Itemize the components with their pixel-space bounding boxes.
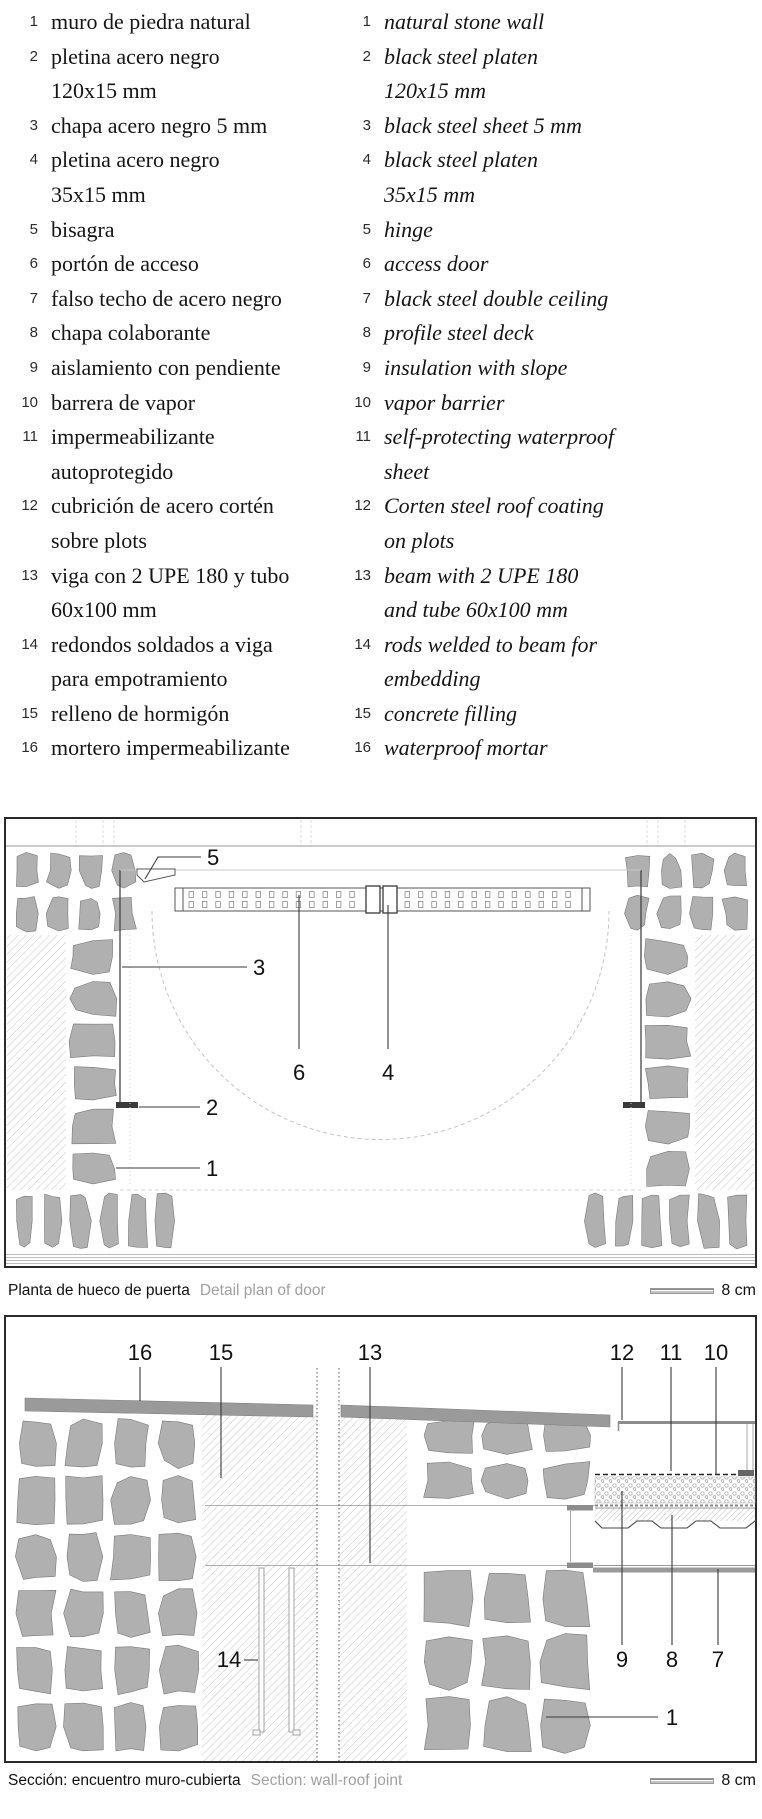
stone xyxy=(645,1066,688,1099)
legend-num: 11 xyxy=(341,420,371,489)
legend-term-es: cubrición de acero cortén sobre plots xyxy=(51,489,328,558)
legend-term-es: redondos soldados a viga para empotramie… xyxy=(51,628,328,697)
legend-term-es: viga con 2 UPE 180 y tubo 60x100 mm xyxy=(51,559,328,628)
legend-term-es: aislamiento con pendiente xyxy=(51,351,328,386)
plan-caption-en: Detail plan of door xyxy=(200,1282,326,1300)
callout-16-mortar: 16 xyxy=(128,1340,152,1365)
section-caption: Sección: encuentro muro-cubierta Section… xyxy=(8,1771,756,1791)
stone xyxy=(114,1703,146,1752)
legend-term-en: black steel platen 35x15 mm xyxy=(384,143,756,212)
stone xyxy=(115,1647,150,1695)
legend-num: 7 xyxy=(341,282,371,317)
scale-bar xyxy=(650,1288,714,1294)
stone xyxy=(69,1024,115,1058)
stone xyxy=(625,856,649,887)
callout-5-hinge: 5 xyxy=(207,845,219,870)
stone xyxy=(72,1109,116,1144)
legend-num: 14 xyxy=(341,628,371,697)
stone xyxy=(158,1589,197,1636)
legend-term-es: mortero impermeabilizante xyxy=(51,731,328,766)
stone xyxy=(74,1067,116,1100)
hatch-left xyxy=(7,935,66,1190)
sheet-end-block xyxy=(738,1470,754,1476)
legend-term-en: rods welded to beam for embedding xyxy=(384,628,756,697)
plan-scale-value: 8 cm xyxy=(721,1282,756,1300)
stone xyxy=(645,1111,689,1145)
legend-term-en: black steel platen 120x15 mm xyxy=(384,40,756,109)
legend-term-en: black steel double ceiling xyxy=(384,282,756,317)
steel-ceiling-band xyxy=(593,1568,755,1573)
stone xyxy=(111,1535,151,1580)
stone xyxy=(155,1193,175,1248)
legend-term-es: bisagra xyxy=(51,213,328,248)
stone xyxy=(66,1476,103,1525)
stone xyxy=(424,1420,474,1454)
stone xyxy=(73,1153,116,1184)
legend-term-es: barrera de vapor xyxy=(51,386,328,421)
stone xyxy=(728,1195,747,1249)
callout-2-platen: 2 xyxy=(206,1095,218,1120)
stone xyxy=(18,1704,56,1751)
callout-13-beam: 13 xyxy=(358,1340,382,1365)
callout-7-ceiling: 7 xyxy=(712,1647,724,1672)
legend-num: 9 xyxy=(8,351,38,386)
stone xyxy=(162,1476,196,1523)
legend-term-en: vapor barrier xyxy=(384,386,756,421)
stone xyxy=(647,1151,690,1186)
door-leaf xyxy=(175,886,590,913)
legend-num: 2 xyxy=(341,40,371,109)
legend-term-es: chapa colaborante xyxy=(51,316,328,351)
legend-term-es: chapa acero negro 5 mm xyxy=(51,109,328,144)
legend-term-es: relleno de hormigón xyxy=(51,697,328,732)
legend-num: 10 xyxy=(8,386,38,421)
stone xyxy=(16,897,38,932)
stone xyxy=(484,1573,530,1622)
stone xyxy=(424,1697,470,1750)
stone xyxy=(65,1647,103,1691)
legend-term-es: impermeabilizante autoprotegido xyxy=(51,420,328,489)
stone xyxy=(15,1535,56,1580)
legend-num: 4 xyxy=(8,143,38,212)
callout-6-door: 6 xyxy=(293,1060,305,1085)
stone xyxy=(482,1636,531,1690)
legend-num: 15 xyxy=(341,697,371,732)
stone xyxy=(16,852,38,886)
stone xyxy=(670,1195,690,1247)
legend-num: 3 xyxy=(8,109,38,144)
stone xyxy=(17,1648,53,1694)
callout-3-sheet: 3 xyxy=(253,955,265,980)
section-caption-en: Section: wall-roof joint xyxy=(251,1772,403,1790)
section-drawing: 16 15 13 12 11 10 9 8 7 14 1 xyxy=(4,1315,757,1763)
legend-num: 12 xyxy=(8,489,38,558)
callout-10-vapor: 10 xyxy=(704,1340,728,1365)
legend-num: 1 xyxy=(341,5,371,40)
concrete-fill-right xyxy=(339,1417,407,1761)
deck-concrete xyxy=(595,1508,755,1521)
legend-num: 7 xyxy=(8,282,38,317)
stone xyxy=(64,1703,104,1751)
hatch-right xyxy=(695,935,754,1190)
legend-term-en: insulation with slope xyxy=(384,351,756,386)
stone xyxy=(115,1419,149,1468)
legend-num: 5 xyxy=(8,213,38,248)
legend-num: 10 xyxy=(341,386,371,421)
stone xyxy=(543,1570,590,1627)
stone xyxy=(71,940,113,975)
legend-term-es: pletina acero negro 35x15 mm xyxy=(51,143,328,212)
callout-14-rods: 14 xyxy=(217,1647,241,1672)
legend-term-en: profile steel deck xyxy=(384,316,756,351)
stone xyxy=(424,1571,473,1627)
legend-num: 9 xyxy=(341,351,371,386)
legend-term-en: black steel sheet 5 mm xyxy=(384,109,756,144)
legend-term-es: portón de acceso xyxy=(51,247,328,282)
legend-num: 8 xyxy=(341,316,371,351)
legend-num: 4 xyxy=(341,143,371,212)
callout-11-waterproof: 11 xyxy=(660,1340,683,1365)
materials-legend: 1muro de piedra natural1natural stone wa… xyxy=(8,5,756,766)
plan-scale: 8 cm xyxy=(650,1282,756,1300)
callout-4-platen: 4 xyxy=(382,1060,394,1085)
stone xyxy=(115,1592,151,1638)
stone xyxy=(543,1462,590,1500)
section-scale-value: 8 cm xyxy=(721,1772,756,1790)
insulation-layer xyxy=(595,1477,755,1503)
legend-num: 8 xyxy=(8,316,38,351)
stone xyxy=(159,1706,197,1751)
stone xyxy=(64,1589,104,1637)
stone xyxy=(690,897,713,930)
stone xyxy=(159,1533,197,1580)
section-scale: 8 cm xyxy=(650,1772,756,1790)
stone xyxy=(540,1634,590,1690)
stone xyxy=(111,1477,151,1525)
stone xyxy=(484,1697,532,1752)
stone xyxy=(424,1637,472,1691)
stone xyxy=(16,1590,56,1636)
plan-caption: Planta de hueco de puerta Detail plan of… xyxy=(8,1281,756,1301)
legend-num: 5 xyxy=(341,213,371,248)
legend-term-en: natural stone wall xyxy=(384,5,756,40)
meeting-stile-left xyxy=(366,886,380,913)
legend-num: 13 xyxy=(341,559,371,628)
legend-term-es: falso techo de acero negro xyxy=(51,282,328,317)
legend-term-en: beam with 2 UPE 180 and tube 60x100 mm xyxy=(384,559,756,628)
callout-15-filling: 15 xyxy=(209,1340,233,1365)
stone xyxy=(159,1645,199,1694)
legend-num: 6 xyxy=(8,247,38,282)
legend-term-en: Corten steel roof coating on plots xyxy=(384,489,756,558)
legend-num: 16 xyxy=(8,731,38,766)
stone xyxy=(645,1025,691,1059)
legend-num: 16 xyxy=(341,731,371,766)
stone xyxy=(16,1196,32,1247)
stone xyxy=(65,1419,102,1467)
legend-term-en: concrete filling xyxy=(384,697,756,732)
meeting-stile-right xyxy=(383,886,397,913)
legend-term-es: pletina acero negro 120x15 mm xyxy=(51,40,328,109)
legend-num: 11 xyxy=(8,420,38,489)
stone xyxy=(67,1533,103,1582)
legend-term-es: muro de piedra natural xyxy=(51,5,328,40)
legend-num: 6 xyxy=(341,247,371,282)
legend-num: 15 xyxy=(8,697,38,732)
stone xyxy=(79,899,100,930)
legend-term-en: access door xyxy=(384,247,756,282)
legend-num: 12 xyxy=(341,489,371,558)
scale-bar xyxy=(650,1778,714,1784)
callout-8-deck: 8 xyxy=(666,1647,678,1672)
legend-term-en: self-protecting waterproof sheet xyxy=(384,420,756,489)
legend-term-en: hinge xyxy=(384,213,756,248)
stone xyxy=(541,1699,591,1753)
callout-12-corten: 12 xyxy=(610,1340,634,1365)
legend-num: 1 xyxy=(8,5,38,40)
callout-9-insulation: 9 xyxy=(616,1647,628,1672)
stone xyxy=(45,1194,62,1247)
plan-drawing: 5 3 6 4 2 1 xyxy=(4,817,757,1268)
callout-1-wall: 1 xyxy=(666,1705,678,1730)
legend-num: 3 xyxy=(341,109,371,144)
plan-caption-es: Planta de hueco de puerta xyxy=(8,1282,190,1300)
section-caption-es: Sección: encuentro muro-cubierta xyxy=(8,1772,241,1790)
platen-left xyxy=(116,1102,138,1108)
stone xyxy=(19,1421,56,1466)
stone xyxy=(17,1476,55,1524)
stone xyxy=(128,1194,147,1247)
legend-term-en: waterproof mortar xyxy=(384,731,756,766)
callout-1-wall: 1 xyxy=(206,1156,218,1181)
platen-right xyxy=(623,1102,645,1108)
legend-num: 2 xyxy=(8,40,38,109)
stone xyxy=(642,1195,662,1248)
legend-num: 13 xyxy=(8,559,38,628)
legend-num: 14 xyxy=(8,628,38,697)
stone xyxy=(424,1462,474,1498)
beam-zone xyxy=(408,1507,595,1564)
